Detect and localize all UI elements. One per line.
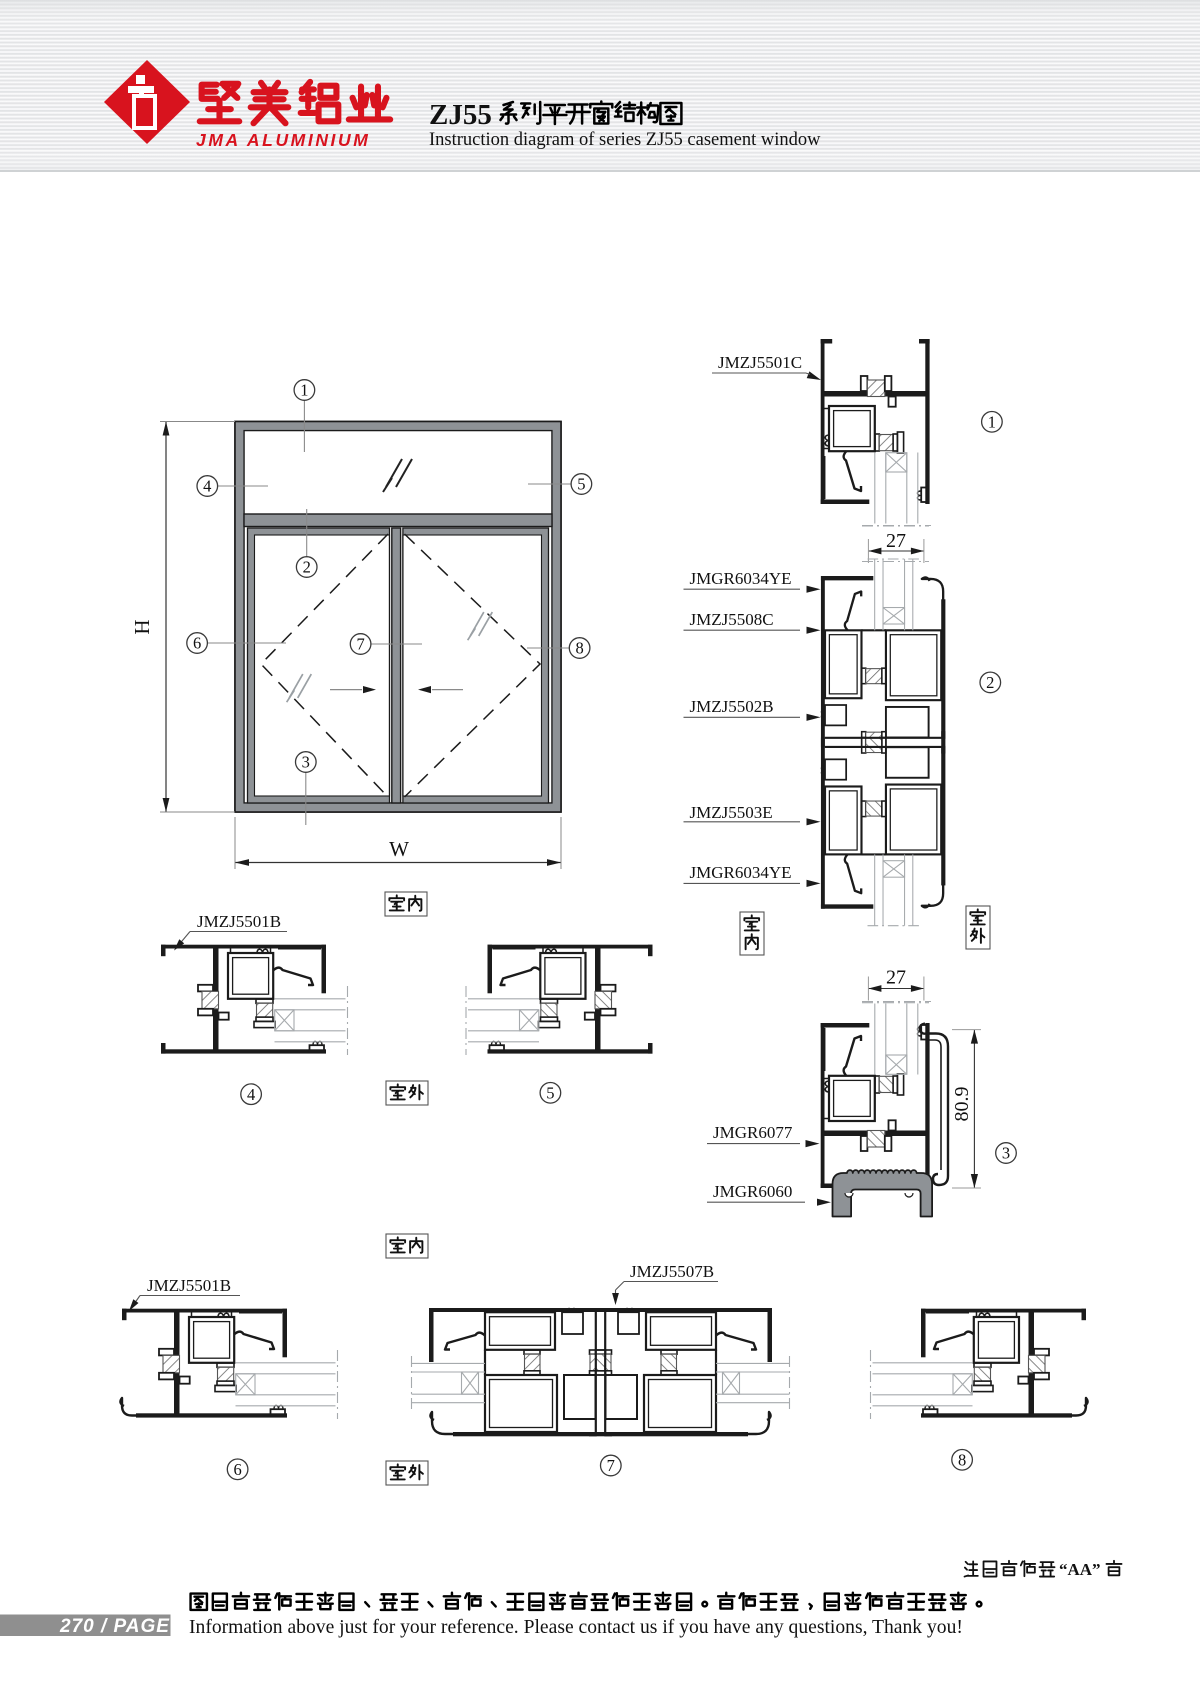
svg-text:2: 2	[986, 673, 994, 692]
svg-text:JMZJ5502B: JMZJ5502B	[690, 697, 774, 716]
svg-text:Information above just for you: Information above just for your referenc…	[189, 1617, 963, 1638]
svg-text:1: 1	[988, 412, 996, 431]
svg-text:6: 6	[233, 1460, 241, 1479]
svg-text:7: 7	[607, 1456, 615, 1475]
svg-text:Instruction diagram of series: Instruction diagram of series ZJ55 casem…	[429, 130, 821, 150]
svg-text:27: 27	[886, 530, 906, 552]
svg-text:JMA ALUMINIUM: JMA ALUMINIUM	[196, 130, 370, 150]
svg-text:JMZJ5507B: JMZJ5507B	[630, 1262, 714, 1281]
svg-text:5: 5	[577, 475, 585, 494]
svg-text:JMZJ5503E: JMZJ5503E	[690, 803, 773, 822]
svg-text:JMGR6034YE: JMGR6034YE	[690, 863, 792, 882]
svg-text:JMZJ5501B: JMZJ5501B	[197, 912, 281, 931]
svg-text:1: 1	[300, 381, 308, 400]
svg-text:H: H	[130, 619, 154, 634]
svg-text:“AA”: “AA”	[1059, 1560, 1101, 1579]
svg-text:27: 27	[886, 967, 906, 989]
svg-text:5: 5	[546, 1083, 554, 1102]
svg-text:W: W	[389, 837, 409, 861]
svg-text:JMZJ5501B: JMZJ5501B	[147, 1276, 231, 1295]
svg-text:6: 6	[193, 634, 201, 653]
svg-text:JMZJ5501C: JMZJ5501C	[718, 353, 802, 372]
svg-text:JMGR6077: JMGR6077	[713, 1123, 793, 1142]
svg-text:4: 4	[247, 1085, 255, 1104]
svg-text:80.9: 80.9	[951, 1087, 973, 1122]
svg-text:7: 7	[356, 635, 364, 654]
svg-text:3: 3	[302, 753, 310, 772]
svg-text:8: 8	[575, 639, 583, 658]
svg-text:ZJ55: ZJ55	[429, 99, 492, 131]
svg-text:8: 8	[958, 1450, 966, 1469]
svg-text:JMGR6060: JMGR6060	[713, 1182, 792, 1201]
svg-text:JMZJ5508C: JMZJ5508C	[690, 610, 774, 629]
svg-text:4: 4	[203, 477, 211, 496]
svg-text:JMGR6034YE: JMGR6034YE	[690, 569, 792, 588]
svg-text:2: 2	[303, 558, 311, 577]
svg-text:270 / PAGE: 270 / PAGE	[59, 1616, 170, 1637]
svg-text:3: 3	[1002, 1144, 1010, 1163]
